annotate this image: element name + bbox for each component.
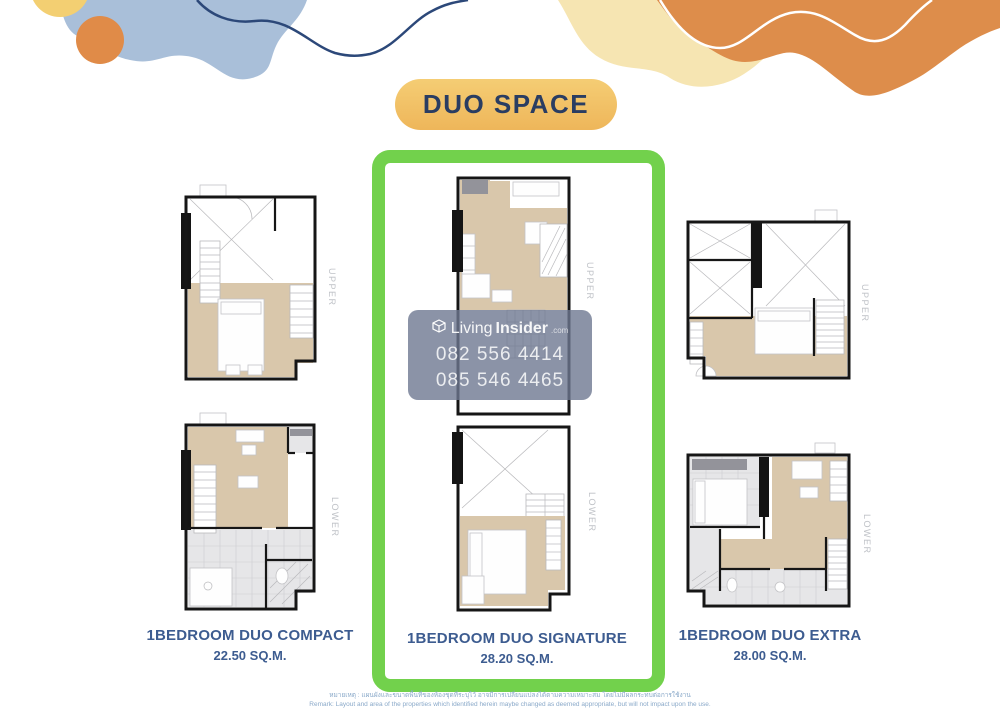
level-label-compact-lower: LOWER [330,497,340,538]
brand-insider: Insider [496,320,548,338]
duo-space-badge: DUO SPACE [395,79,617,130]
brand-living: Living [451,320,493,338]
watermark: LivingInsider.com 082 556 4414 085 546 4… [408,310,592,400]
highlight-frame-signature [372,150,665,692]
floorplan-compact-lower [178,410,322,613]
duo-space-badge-label: DUO SPACE [423,89,589,120]
disclaimer: หมายเหตุ : แผนผังและขนาดพื้นที่ของห้องชุ… [285,692,735,709]
cube-logo-icon [432,319,446,333]
level-label-extra-upper: UPPER [860,284,870,323]
plan-area-compact: 22.50 SQ.M. [100,648,400,663]
brand-suffix: .com [551,322,568,340]
plan-name-extra: 1BEDROOM DUO EXTRA [620,627,920,644]
level-label-compact-upper: UPPER [327,268,337,307]
watermark-brand: LivingInsider.com [432,319,569,340]
disclaimer-line-th: หมายเหตุ : แผนผังและขนาดพื้นที่ของห้องชุ… [285,692,735,701]
floorplan-compact-upper [178,183,323,383]
orange-circle-shape [76,16,124,64]
disclaimer-line-en: Remark: Layout and area of the propertie… [285,701,735,710]
plan-area-extra: 28.00 SQ.M. [620,648,920,663]
watermark-phone-2: 085 546 4465 [436,370,564,392]
floorplan-extra-lower [680,441,857,612]
watermark-phone-1: 082 556 4414 [436,344,564,366]
plan-name-compact: 1BEDROOM DUO COMPACT [100,627,400,644]
caption-extra: 1BEDROOM DUO EXTRA 28.00 SQ.M. [620,627,920,663]
floorplan-extra-upper [680,208,857,382]
level-label-extra-lower: LOWER [862,514,872,555]
caption-compact: 1BEDROOM DUO COMPACT 22.50 SQ.M. [100,627,400,663]
